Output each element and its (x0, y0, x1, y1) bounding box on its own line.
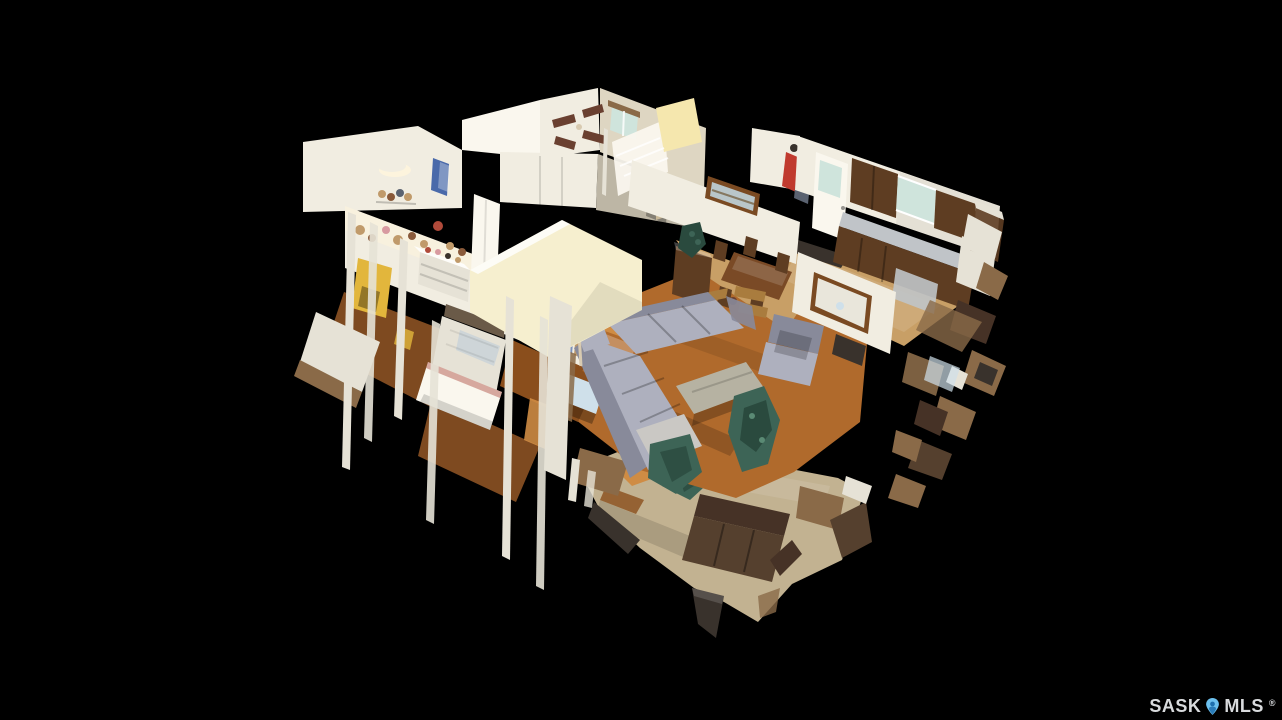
registered-symbol: ® (1269, 698, 1276, 708)
brand-text-sask: SASK (1149, 696, 1201, 717)
brand-text-mls: MLS (1224, 696, 1264, 717)
tour-viewport[interactable] (0, 0, 1282, 720)
sask-mls-watermark: SASK MLS ® (1149, 696, 1276, 717)
map-pin-icon (1206, 698, 1219, 715)
dollhouse-render[interactable] (0, 0, 1282, 720)
